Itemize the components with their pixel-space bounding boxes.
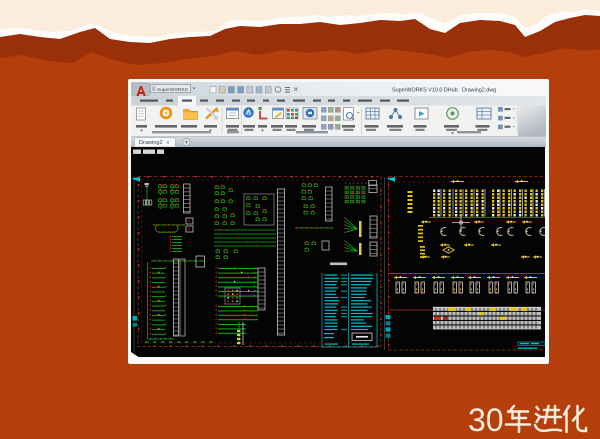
svg-text:x: x: [167, 140, 170, 146]
svg-text:SuperWORKS: SuperWORKS: [157, 87, 188, 93]
svg-text:30: 30: [468, 402, 504, 438]
svg-text:SuperWORKS V10.0 DHub: SuperWORKS V10.0 DHub: [392, 87, 458, 93]
svg-text:Drawing2: Drawing2: [139, 140, 163, 146]
svg-text:Drawing2.dwg: Drawing2.dwg: [462, 87, 496, 93]
